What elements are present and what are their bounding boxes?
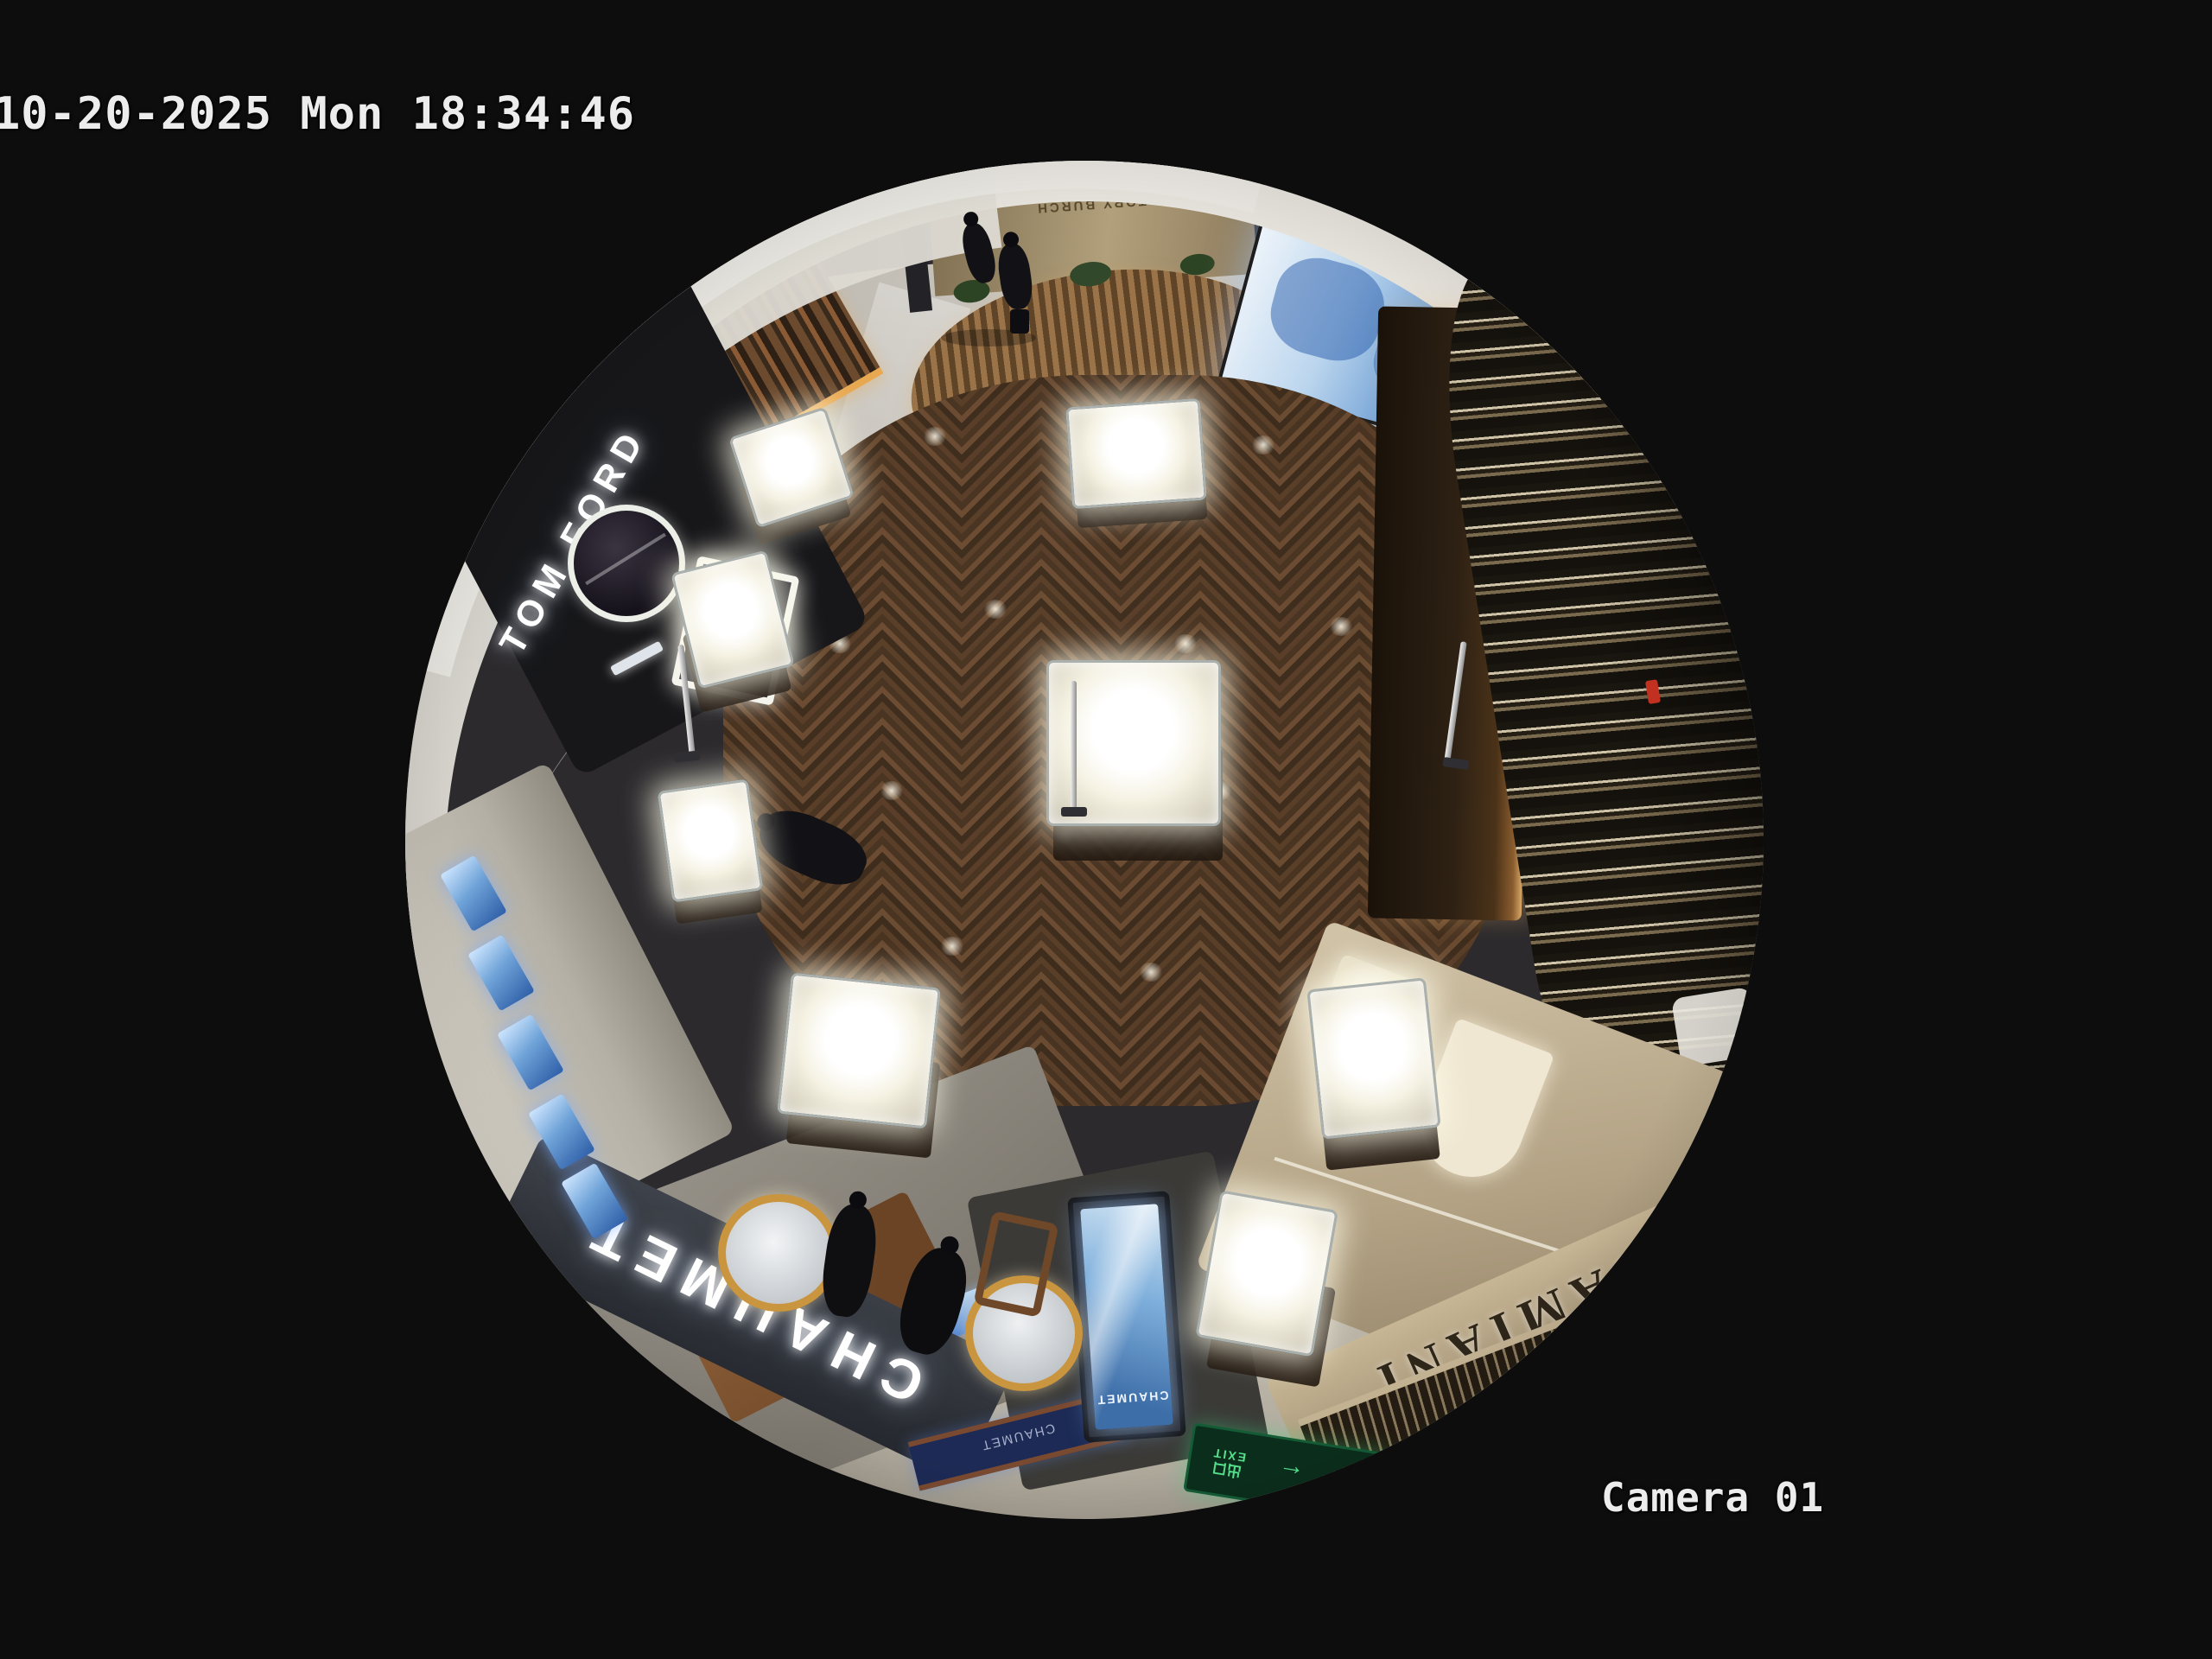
cctv-frame: 10-20-2025 Mon 18:34:46 TORY BURCH <box>0 0 2212 1659</box>
osd-timestamp: 10-20-2025 Mon 18:34:46 <box>0 88 635 140</box>
osd-camera-label: Camera 01 <box>1601 1474 1824 1521</box>
fisheye-camera-view: TORY BURCH <box>405 161 1764 1519</box>
lens-vignette <box>405 161 1764 1519</box>
running-man-icon <box>1335 1465 1365 1498</box>
